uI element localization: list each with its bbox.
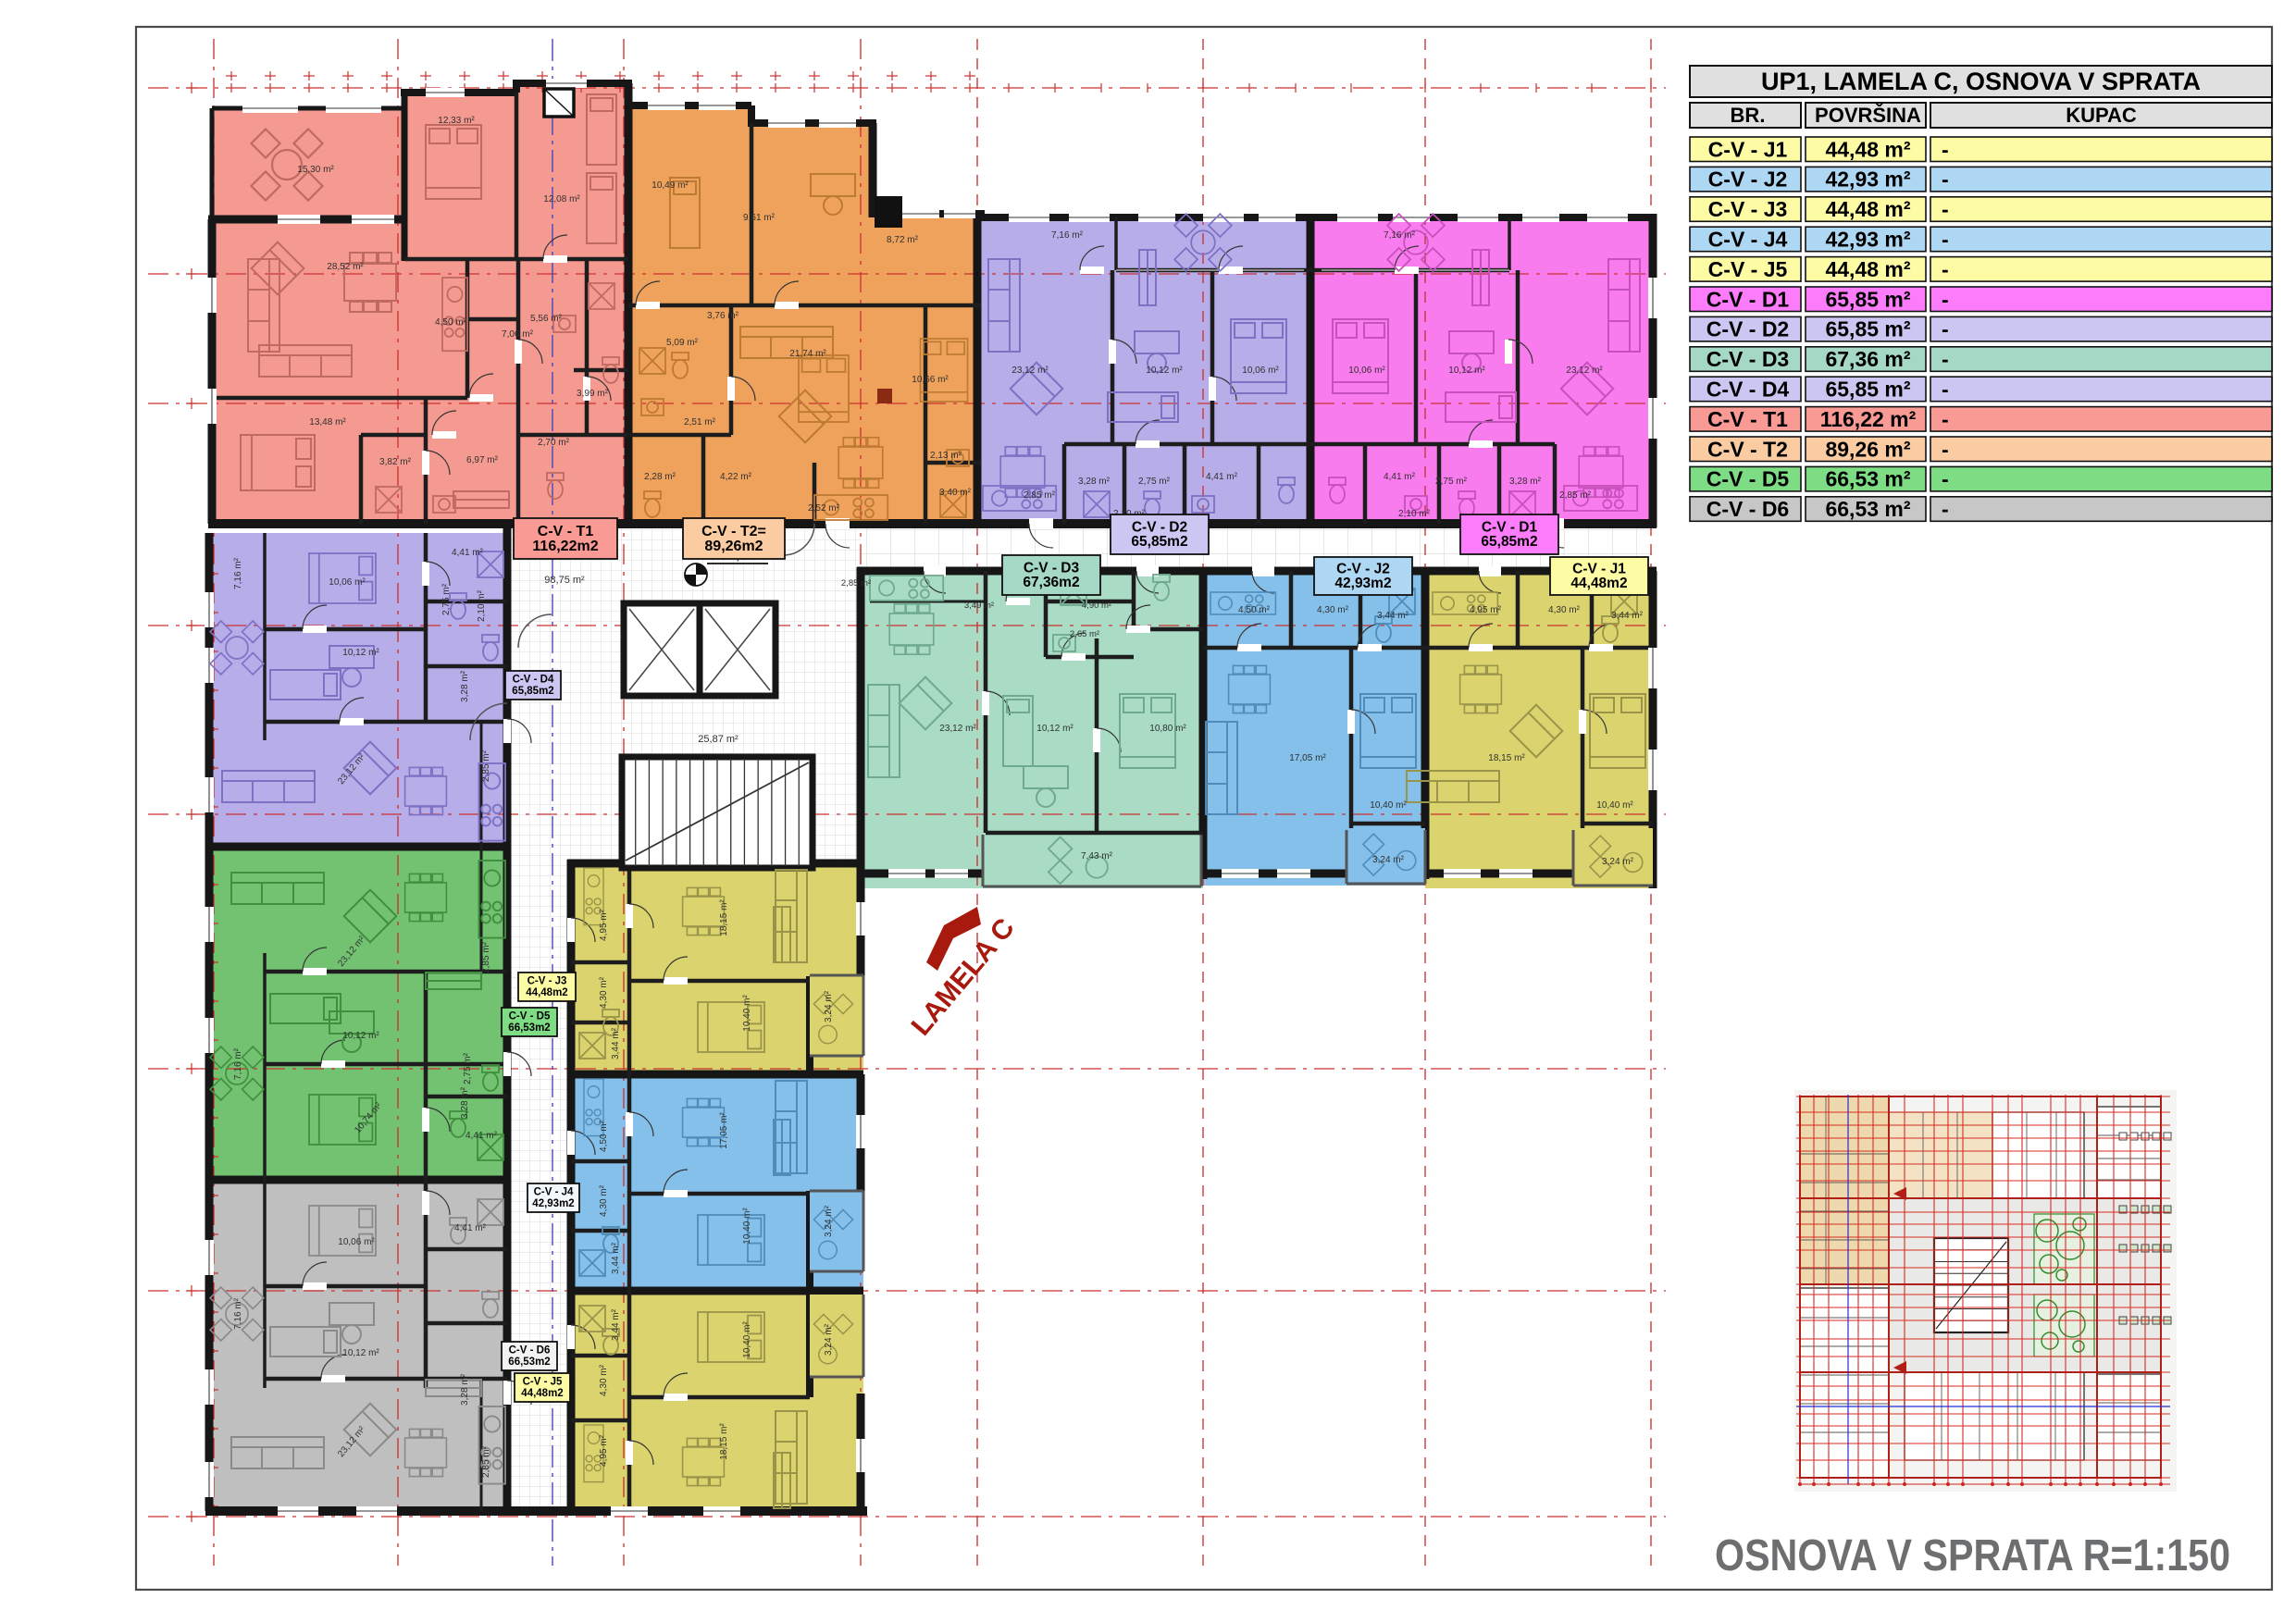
svg-text:C-V - D4: C-V - D4 xyxy=(513,675,554,686)
svg-text:C-V - D3: C-V - D3 xyxy=(1706,347,1789,371)
svg-text:-: - xyxy=(1942,317,1949,341)
svg-text:18,15 m²: 18,15 m² xyxy=(719,1423,729,1460)
svg-text:2,85 m²: 2,85 m² xyxy=(841,578,871,588)
svg-text:3,44 m²: 3,44 m² xyxy=(611,1027,621,1059)
svg-text:10,12 m²: 10,12 m² xyxy=(342,648,379,658)
svg-text:C-V - D4: C-V - D4 xyxy=(1706,377,1790,401)
svg-text:3,40 m²: 3,40 m² xyxy=(939,488,972,498)
svg-text:9,61 m²: 9,61 m² xyxy=(743,213,776,223)
svg-text:116,22 m²: 116,22 m² xyxy=(1820,407,1917,431)
svg-text:10,06 m²: 10,06 m² xyxy=(329,577,366,588)
svg-text:3,28 m²: 3,28 m² xyxy=(460,1086,470,1119)
svg-text:8,72 m²: 8,72 m² xyxy=(887,235,919,245)
svg-text:42,93m2: 42,93m2 xyxy=(532,1198,574,1209)
svg-text:2,85 m²: 2,85 m² xyxy=(1559,490,1592,501)
svg-text:10,12 m²: 10,12 m² xyxy=(1146,365,1183,376)
svg-text:-: - xyxy=(1942,197,1949,221)
svg-text:2,28 m²: 2,28 m² xyxy=(644,472,676,482)
svg-text:OSNOVA V SPRATA R=1:150: OSNOVA V SPRATA R=1:150 xyxy=(1715,1531,2230,1580)
svg-text:13,48 m²: 13,48 m² xyxy=(309,417,346,427)
svg-text:7,16 m²: 7,16 m² xyxy=(233,557,243,589)
svg-text:23,12 m²: 23,12 m² xyxy=(939,724,976,734)
svg-text:3,24 m²: 3,24 m² xyxy=(824,1205,834,1237)
svg-text:4,30 m²: 4,30 m² xyxy=(599,1184,609,1217)
svg-text:C-V - J3: C-V - J3 xyxy=(527,976,567,987)
svg-text:10,12 m²: 10,12 m² xyxy=(342,1348,379,1358)
svg-text:2,51 m²: 2,51 m² xyxy=(684,417,716,427)
svg-text:3,82 m²: 3,82 m² xyxy=(379,457,412,467)
svg-text:116,22m2: 116,22m2 xyxy=(532,539,598,554)
svg-text:C-V - D5: C-V - D5 xyxy=(509,1011,551,1022)
svg-text:UP1, LAMELA C, OSNOVA V SPRATA: UP1, LAMELA C, OSNOVA V SPRATA xyxy=(1761,68,2201,95)
svg-text:4,30 m²: 4,30 m² xyxy=(599,976,609,1009)
svg-text:4,41 m²: 4,41 m² xyxy=(465,1131,498,1141)
svg-text:-: - xyxy=(1942,137,1949,161)
svg-text:C-V - D3: C-V - D3 xyxy=(1024,561,1080,576)
svg-text:17,05 m²: 17,05 m² xyxy=(1289,753,1326,763)
svg-text:28,52 m²: 28,52 m² xyxy=(327,262,364,272)
svg-text:10,12 m²: 10,12 m² xyxy=(342,1031,379,1041)
svg-text:-: - xyxy=(1942,497,1949,521)
svg-text:C-V - D6: C-V - D6 xyxy=(1706,497,1789,521)
svg-text:44,48 m²: 44,48 m² xyxy=(1825,257,1910,281)
svg-text:4,30 m²: 4,30 m² xyxy=(1548,605,1581,615)
svg-text:7,16 m²: 7,16 m² xyxy=(1384,230,1416,241)
svg-text:4,95 m²: 4,95 m² xyxy=(599,1434,609,1467)
svg-text:C-V - J1: C-V - J1 xyxy=(1572,562,1626,577)
svg-text:-: - xyxy=(1942,287,1949,311)
svg-text:-: - xyxy=(1942,257,1949,281)
svg-text:65,85 m²: 65,85 m² xyxy=(1825,377,1910,401)
svg-text:44,48 m²: 44,48 m² xyxy=(1825,197,1910,221)
svg-text:4,30 m²: 4,30 m² xyxy=(599,1364,609,1396)
svg-text:3,44 m²: 3,44 m² xyxy=(611,1242,621,1274)
svg-text:44,48 m²: 44,48 m² xyxy=(1825,137,1910,161)
svg-text:C-V - D1: C-V - D1 xyxy=(1706,287,1790,311)
svg-text:3,28 m²: 3,28 m² xyxy=(460,1373,470,1406)
svg-text:44,48m2: 44,48m2 xyxy=(521,1388,563,1399)
svg-text:C-V - J2: C-V - J2 xyxy=(1708,167,1788,192)
svg-text:10,40 m²: 10,40 m² xyxy=(742,1208,752,1245)
svg-text:-: - xyxy=(1942,227,1949,251)
svg-text:10,49 m²: 10,49 m² xyxy=(652,180,689,191)
svg-text:10,06 m²: 10,06 m² xyxy=(1242,365,1279,376)
svg-text:4,30 m²: 4,30 m² xyxy=(1317,605,1349,615)
svg-text:17,05 m²: 17,05 m² xyxy=(719,1112,729,1149)
svg-text:66,53 m²: 66,53 m² xyxy=(1825,497,1910,521)
svg-text:2,85 m²: 2,85 m² xyxy=(481,941,491,973)
svg-text:12,33 m²: 12,33 m² xyxy=(438,116,475,126)
svg-text:4,50 m²: 4,50 m² xyxy=(1238,605,1271,615)
svg-text:2,85 m²: 2,85 m² xyxy=(481,1445,491,1478)
svg-text:C-V - D2: C-V - D2 xyxy=(1706,317,1789,341)
svg-text:4,50 m²: 4,50 m² xyxy=(435,317,467,328)
svg-text:7,06 m²: 7,06 m² xyxy=(502,329,534,340)
svg-text:21,74 m²: 21,74 m² xyxy=(789,349,826,359)
svg-text:89,26m2: 89,26m2 xyxy=(704,539,763,554)
svg-text:4,41 m²: 4,41 m² xyxy=(454,1223,487,1233)
svg-text:C-V - D1: C-V - D1 xyxy=(1482,520,1538,536)
svg-text:44,48m2: 44,48m2 xyxy=(1570,576,1627,591)
svg-text:10,12 m²: 10,12 m² xyxy=(1036,724,1074,734)
svg-text:C-V - J1: C-V - J1 xyxy=(1708,137,1788,161)
svg-text:98,75 m²: 98,75 m² xyxy=(544,575,585,586)
svg-text:C-V - D2: C-V - D2 xyxy=(1132,520,1187,536)
svg-text:6,97 m²: 6,97 m² xyxy=(466,455,499,465)
svg-text:3,44 m²: 3,44 m² xyxy=(611,1308,621,1341)
svg-text:2,75 m²: 2,75 m² xyxy=(1138,477,1171,487)
svg-text:65,85m2: 65,85m2 xyxy=(1481,534,1537,550)
svg-text:89,26 m²: 89,26 m² xyxy=(1825,437,1910,461)
svg-text:2,75 m²: 2,75 m² xyxy=(441,583,452,615)
svg-text:10,40 m²: 10,40 m² xyxy=(742,1321,752,1358)
svg-text:7,16 m²: 7,16 m² xyxy=(233,1297,243,1330)
svg-text:C-V - T2=: C-V - T2= xyxy=(701,524,766,539)
svg-text:66,53 m²: 66,53 m² xyxy=(1825,467,1910,491)
svg-text:5,56 m²: 5,56 m² xyxy=(530,314,563,324)
svg-text:3,28 m²: 3,28 m² xyxy=(460,670,470,702)
svg-text:44,48m2: 44,48m2 xyxy=(526,987,567,998)
svg-text:10,12 m²: 10,12 m² xyxy=(1448,365,1485,376)
svg-text:2,10 m²: 2,10 m² xyxy=(1398,509,1431,519)
svg-text:7,43 m²: 7,43 m² xyxy=(1081,851,1113,861)
svg-text:-: - xyxy=(1942,347,1949,371)
svg-text:66,53m2: 66,53m2 xyxy=(508,1357,550,1368)
svg-text:23,12 m²: 23,12 m² xyxy=(1566,365,1603,376)
svg-text:3,24 m²: 3,24 m² xyxy=(1372,855,1405,865)
svg-text:65,85m2: 65,85m2 xyxy=(512,686,553,697)
svg-text:-: - xyxy=(1942,407,1949,431)
svg-text:3,99 m²: 3,99 m² xyxy=(577,389,609,399)
svg-text:2,70 m²: 2,70 m² xyxy=(538,438,570,448)
svg-text:C-V - T2: C-V - T2 xyxy=(1707,437,1788,461)
svg-text:25,87 m²: 25,87 m² xyxy=(698,734,738,745)
svg-text:2,75 m²: 2,75 m² xyxy=(1435,477,1468,487)
svg-text:3,28 m²: 3,28 m² xyxy=(1509,477,1542,487)
svg-text:67,36m2: 67,36m2 xyxy=(1023,575,1079,590)
svg-text:POVRŠINA: POVRŠINA xyxy=(1815,104,1921,127)
svg-text:10,80 m²: 10,80 m² xyxy=(1149,724,1186,734)
svg-text:2,85 m²: 2,85 m² xyxy=(481,750,491,782)
svg-text:2,13 m²: 2,13 m² xyxy=(930,451,962,461)
svg-text:3,24 m²: 3,24 m² xyxy=(824,990,834,1022)
svg-text:66,53m2: 66,53m2 xyxy=(508,1022,550,1034)
svg-text:-: - xyxy=(1942,437,1949,461)
svg-text:C-V - D6: C-V - D6 xyxy=(509,1345,551,1357)
svg-text:4,22 m²: 4,22 m² xyxy=(720,472,752,482)
svg-text:4,50 m²: 4,50 m² xyxy=(599,1120,609,1152)
svg-text:C-V - J3: C-V - J3 xyxy=(1708,197,1788,221)
svg-text:5,09 m²: 5,09 m² xyxy=(666,338,699,348)
svg-text:3,44 m²: 3,44 m² xyxy=(1611,611,1644,621)
svg-text:23,12 m²: 23,12 m² xyxy=(1011,365,1049,376)
svg-text:3,24 m²: 3,24 m² xyxy=(824,1323,834,1356)
svg-text:C-V - D5: C-V - D5 xyxy=(1706,467,1790,491)
svg-text:2,52 m²: 2,52 m² xyxy=(808,503,840,514)
svg-text:10,40 m²: 10,40 m² xyxy=(742,995,752,1032)
svg-text:42,93m2: 42,93m2 xyxy=(1334,576,1391,591)
svg-text:C-V - T1: C-V - T1 xyxy=(538,524,594,539)
svg-text:42,93 m²: 42,93 m² xyxy=(1825,167,1910,192)
svg-text:BR.: BR. xyxy=(1731,104,1766,127)
svg-text:C-V - T1: C-V - T1 xyxy=(1707,407,1788,431)
svg-text:65,85 m²: 65,85 m² xyxy=(1825,287,1910,311)
svg-text:C-V - J2: C-V - J2 xyxy=(1336,562,1390,577)
svg-text:4,95 m²: 4,95 m² xyxy=(1470,605,1502,615)
svg-text:C-V - J4: C-V - J4 xyxy=(1708,227,1788,251)
svg-text:3,28 m²: 3,28 m² xyxy=(1078,477,1111,487)
svg-text:15,30 m²: 15,30 m² xyxy=(297,165,334,175)
svg-text:10,06 m²: 10,06 m² xyxy=(338,1237,375,1247)
svg-text:3,49 m²: 3,49 m² xyxy=(964,601,994,611)
svg-text:3,44 m²: 3,44 m² xyxy=(1377,611,1409,621)
svg-text:2,65 m²: 2,65 m² xyxy=(1070,629,1099,639)
svg-text:KUPAC: KUPAC xyxy=(2066,104,2137,127)
svg-text:18,15 m²: 18,15 m² xyxy=(1488,753,1525,763)
svg-text:65,85 m²: 65,85 m² xyxy=(1825,317,1910,341)
svg-text:10,66 m²: 10,66 m² xyxy=(912,375,949,385)
svg-text:3,76 m²: 3,76 m² xyxy=(707,311,739,321)
svg-text:2,75 m²: 2,75 m² xyxy=(463,1052,473,1084)
svg-text:10,06 m²: 10,06 m² xyxy=(1348,365,1385,376)
svg-text:42,93 m²: 42,93 m² xyxy=(1825,227,1910,251)
svg-text:C-V - J5: C-V - J5 xyxy=(1708,257,1788,281)
svg-text:4,41 m²: 4,41 m² xyxy=(1206,472,1238,482)
svg-text:7,16 m²: 7,16 m² xyxy=(1051,230,1084,241)
svg-text:-: - xyxy=(1942,167,1949,192)
svg-text:3,24 m²: 3,24 m² xyxy=(1602,857,1634,867)
svg-text:18,15 m²: 18,15 m² xyxy=(719,899,729,936)
svg-text:4,90 m²: 4,90 m² xyxy=(1082,601,1111,611)
svg-text:67,36 m²: 67,36 m² xyxy=(1825,347,1910,371)
svg-text:2,85 m²: 2,85 m² xyxy=(1024,490,1056,501)
svg-text:10,40 m²: 10,40 m² xyxy=(1370,800,1407,811)
svg-text:12,08 m²: 12,08 m² xyxy=(543,194,580,204)
svg-text:C-V - J5: C-V - J5 xyxy=(523,1377,563,1388)
svg-text:4,95 m²: 4,95 m² xyxy=(599,909,609,941)
svg-text:-: - xyxy=(1942,467,1949,491)
svg-text:-: - xyxy=(1942,377,1949,401)
svg-text:7,16 m²: 7,16 m² xyxy=(233,1047,243,1080)
svg-text:2,10 m²: 2,10 m² xyxy=(477,589,487,622)
svg-text:65,85m2: 65,85m2 xyxy=(1131,534,1187,550)
svg-text:10,40 m²: 10,40 m² xyxy=(1596,800,1633,811)
svg-text:4,41 m²: 4,41 m² xyxy=(1384,472,1416,482)
svg-text:C-V - J4: C-V - J4 xyxy=(534,1187,574,1198)
svg-text:4,41 m²: 4,41 m² xyxy=(452,548,484,558)
